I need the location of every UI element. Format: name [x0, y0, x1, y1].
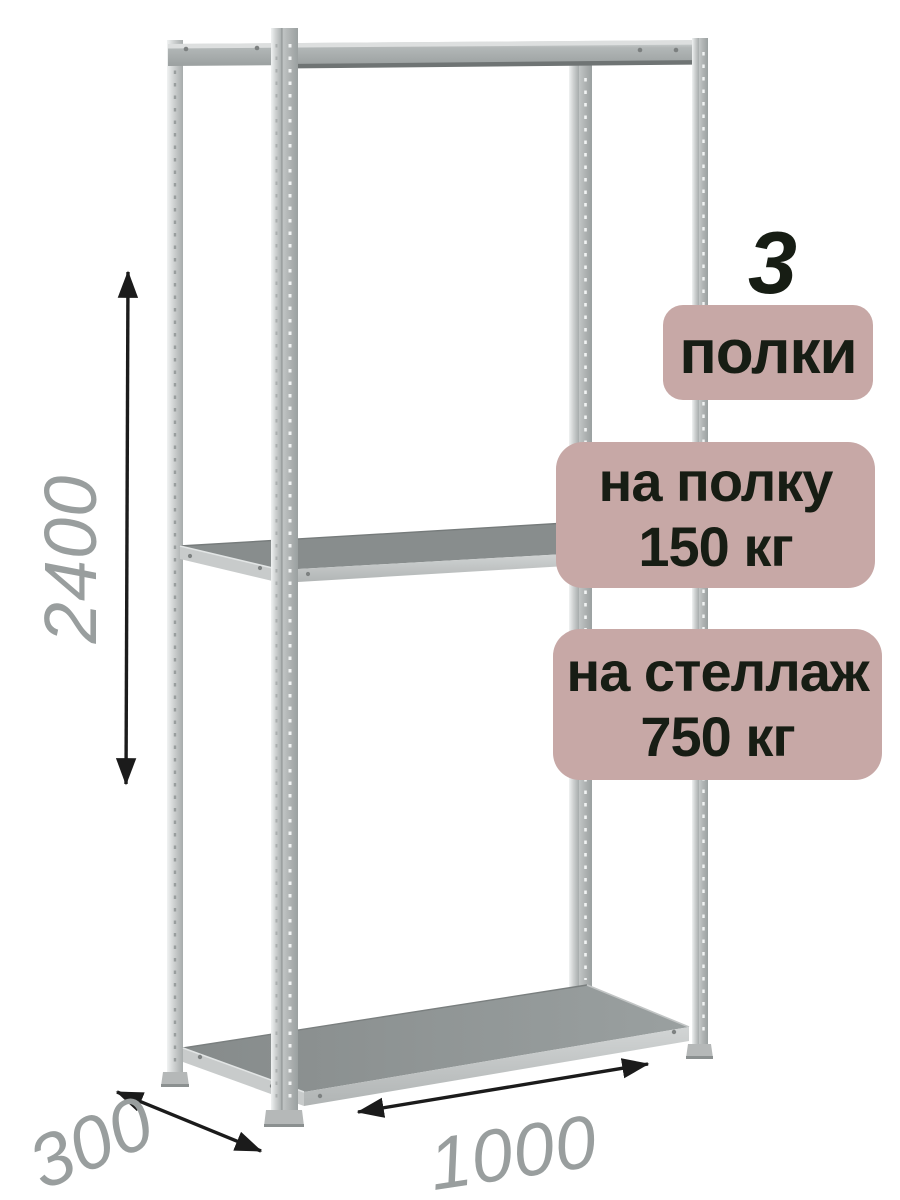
per-shelf-load-value: 150 кг — [638, 515, 792, 580]
bottom-shelf — [183, 985, 689, 1106]
height-dimension-label: 2400 — [29, 475, 112, 645]
shelf-count-label: полки — [679, 317, 856, 389]
per-rack-load-text: на стеллаж — [566, 640, 868, 705]
per-rack-load-badge: на стеллаж 750 кг — [553, 629, 882, 780]
product-image: 2400 300 1000 3 полки на полку 150 кг на… — [0, 0, 900, 1200]
width-dimension-label: 1000 — [424, 1099, 603, 1200]
shelving-rack-illustration: 2400 300 1000 — [0, 0, 900, 1200]
post-back-left — [161, 40, 189, 1087]
per-shelf-load-text: на полку — [599, 450, 833, 515]
per-shelf-load-badge: на полку 150 кг — [556, 442, 875, 588]
per-rack-load-value: 750 кг — [640, 705, 794, 770]
shelf-count-badge: полки — [663, 305, 873, 400]
depth-dimension-label: 300 — [17, 1079, 166, 1200]
middle-shelf — [180, 521, 600, 583]
height-arrow — [126, 272, 128, 784]
shelf-count-number: 3 — [748, 212, 797, 314]
top-shelf — [168, 40, 708, 69]
